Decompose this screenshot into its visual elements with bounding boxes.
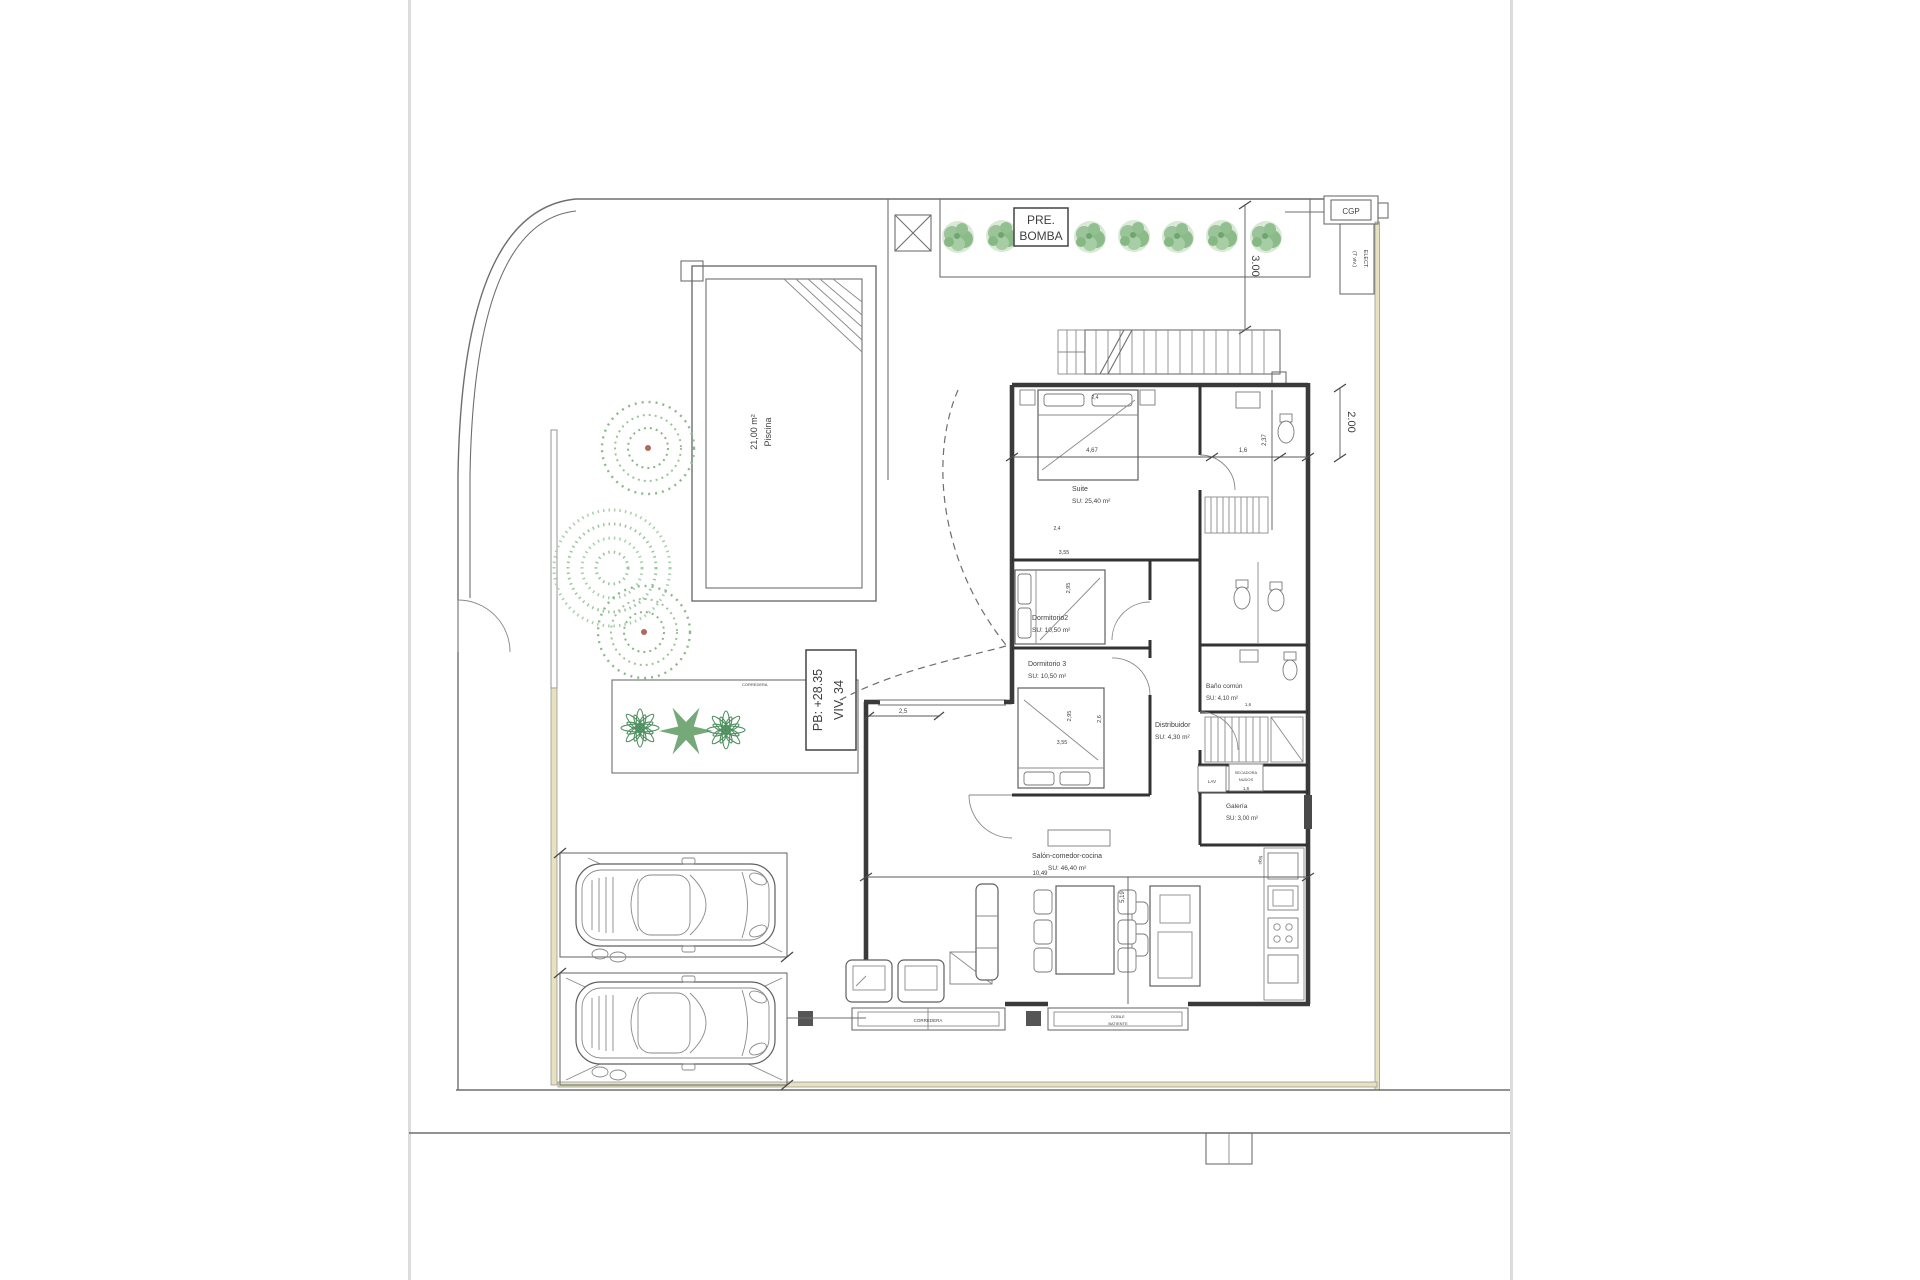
sliding-door-main: CORREDERA xyxy=(852,999,1005,1030)
salon-name-label: Salón-comedor-cocina xyxy=(1032,853,1102,860)
dim-dorm2-depth: 2,95 xyxy=(1066,583,1072,594)
glazed-door-secondary: DOBLE BATIENTE xyxy=(1048,999,1188,1030)
dim-suite-bed: 2,4 xyxy=(1092,395,1099,401)
dim-salon-depth: 5,19 xyxy=(1120,891,1126,903)
galeria-room: Galería SU: 3,00 m² xyxy=(1226,803,1258,822)
parking-area xyxy=(554,848,793,1090)
terrace-pillar xyxy=(1026,1011,1041,1026)
sheet-left-edge xyxy=(408,0,411,1280)
dim-bath-width: 1,6 xyxy=(1239,448,1248,454)
batiente-label-line1: DOBLE xyxy=(1111,1014,1125,1019)
lav-label: LAV xyxy=(1208,779,1216,784)
pool-label: Piscina xyxy=(763,417,773,446)
dimension-top-setback: 3.00 xyxy=(1239,201,1261,334)
bano-area-label: SU: 4,10 m² xyxy=(1206,696,1238,702)
corredera-label: CORREDERA xyxy=(914,1018,943,1023)
bush-plant xyxy=(986,220,1018,252)
dormitorio3-room: Dormitorio 3 SU: 10,50 m² 2,95 2,6 3,55 xyxy=(1018,661,1104,788)
suite-area-label: SU: 25,40 m² xyxy=(1072,498,1111,505)
garden-tree xyxy=(602,402,694,494)
dorm2-name-label: Dormitorio2 xyxy=(1032,615,1068,622)
plot-boundary xyxy=(409,199,1510,1164)
dim-dorm3-width: 3,55 xyxy=(1057,740,1068,746)
pool: Piscina 21,00 m² xyxy=(681,261,876,601)
viv-number-label: VIV. 34 xyxy=(832,680,846,720)
fern-plant xyxy=(707,711,745,749)
suite-name-label: Suite xyxy=(1072,486,1088,493)
frigo-label: frigo xyxy=(1258,856,1263,865)
batiente-label-line2: BATIENTE xyxy=(1108,1021,1128,1026)
galeria-area-label: SU: 3,00 m² xyxy=(1226,816,1258,822)
dim-right-setback: 2.00 xyxy=(1345,411,1357,432)
dashed-roof-overhang xyxy=(840,646,1006,700)
viv-level-label: PB: +28.35 xyxy=(811,669,825,731)
dim-dorm2-bed: 2,4 xyxy=(1054,526,1061,532)
elect-box: ELECT. (7 viv.) xyxy=(1340,224,1374,294)
laundry-area: LAV SECADORA NUDOS 1,6 xyxy=(1198,764,1263,792)
salon-area-label: SU: 46,40 m² xyxy=(1048,865,1087,872)
bano-comun-room: Baño común SU: 4,10 m² 1,6 xyxy=(1205,650,1303,762)
dorm3-area-label: SU: 10,50 m² xyxy=(1028,673,1067,680)
suite-bathroom xyxy=(1205,392,1294,533)
dashed-roof-overhang xyxy=(943,390,1006,645)
galeria-name-label: Galería xyxy=(1226,803,1248,810)
dim-laundry-width: 1,6 xyxy=(1243,786,1250,791)
dim-dorm3-width2: 2,6 xyxy=(1097,715,1103,723)
dim-salon-width: 10,49 xyxy=(1032,871,1048,877)
dim-top-setback: 3.00 xyxy=(1249,255,1261,276)
garden-tree-stippled xyxy=(554,510,670,626)
car-1 xyxy=(576,858,775,962)
kitchen: frigo xyxy=(1132,848,1304,1000)
bush-plant xyxy=(942,221,974,253)
middle-bathroom xyxy=(1234,580,1284,611)
pre-bomba-box: PRE. BOMBA xyxy=(1014,208,1068,246)
dim-terrace-width: 2,5 xyxy=(899,709,908,715)
dim-suite-width: 4,67 xyxy=(1086,448,1098,454)
palm-star-plant xyxy=(659,708,713,755)
corredera-label-top: CORREDERA xyxy=(742,682,768,687)
viv-label-box: VIV. 34 PB: +28.35 xyxy=(806,650,856,750)
dim-bano-width: 1,6 xyxy=(1245,702,1252,707)
dorm3-name-label: Dormitorio 3 xyxy=(1028,661,1066,668)
dim-dorm2-width: 3,55 xyxy=(1059,550,1070,556)
cgp-label: CGP xyxy=(1342,207,1359,216)
dimension-right-setback: 2.00 xyxy=(1334,384,1357,462)
dormitorio2-room: Dormitorio2 SU: 10,50 m² 3,55 2,4 2,95 xyxy=(1015,526,1105,644)
bush-plant xyxy=(1162,221,1194,253)
elect-label-line2: (7 viv.) xyxy=(1351,251,1357,267)
elect-label-line1: ELECT. xyxy=(1362,250,1368,269)
sheet-right-edge xyxy=(1510,0,1513,1280)
exterior-stairs xyxy=(1058,330,1286,386)
dim-dorm3-depth: 2,95 xyxy=(1067,711,1073,722)
planting-band xyxy=(895,199,1310,277)
pre-bomba-label-line2: BOMBA xyxy=(1019,229,1062,243)
secadora-label-line1: SECADORA xyxy=(1235,770,1258,775)
bush-plant xyxy=(1074,221,1106,253)
bano-name-label: Baño común xyxy=(1206,683,1243,690)
secadora-label-line2: NUDOS xyxy=(1239,777,1254,782)
distribuidor-name-label: Distribuidor xyxy=(1155,722,1191,729)
bush-plant xyxy=(1206,220,1238,252)
floor-plan-canvas: PRE. BOMBA CGP ELECT. (7 viv.) 3.00 2.00 xyxy=(0,0,1920,1280)
pool-area-label: 21,00 m² xyxy=(749,414,759,450)
bush-plant xyxy=(1118,220,1150,252)
cgp-box: CGP xyxy=(1324,196,1388,224)
dim-bath-depth: 2,37 xyxy=(1262,434,1268,446)
distribuidor-hall: Distribuidor SU: 4,30 m² xyxy=(1155,722,1191,741)
distribuidor-area-label: SU: 4,30 m² xyxy=(1155,734,1191,741)
dorm2-area-label: SU: 10,50 m² xyxy=(1032,627,1071,634)
bush-plant xyxy=(1250,221,1282,253)
side-window xyxy=(1304,795,1312,829)
floor-plan-page: PRE. BOMBA CGP ELECT. (7 viv.) 3.00 2.00 xyxy=(0,0,1920,1280)
fern-plant xyxy=(621,709,659,747)
pre-bomba-label-line1: PRE. xyxy=(1027,213,1055,227)
car-2 xyxy=(576,976,775,1080)
